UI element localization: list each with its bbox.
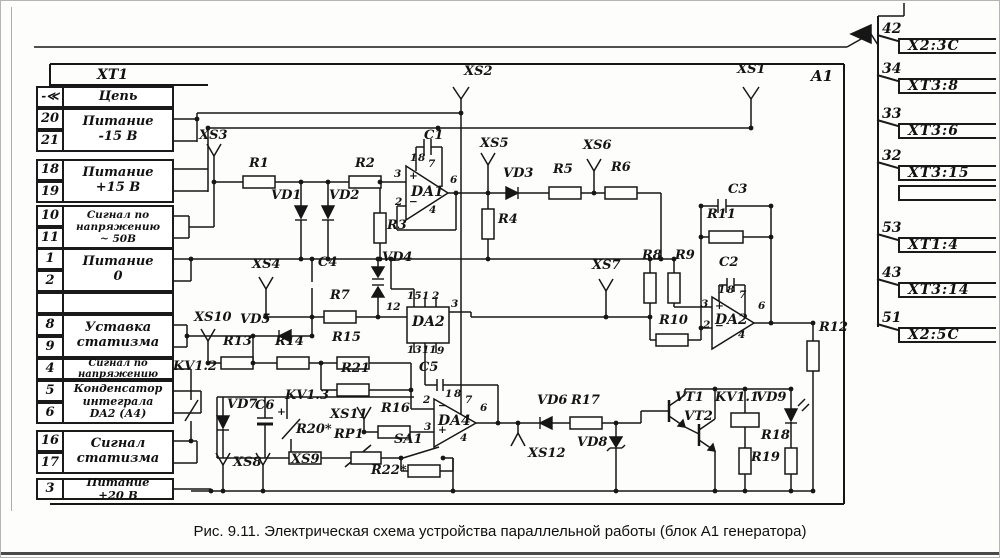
- circuit-label-4: 4: [460, 433, 467, 444]
- circuit-label-2: 2: [423, 395, 430, 406]
- resistor-R10: [656, 334, 688, 346]
- table-circuit-cell: Питание -15 В: [62, 108, 174, 152]
- resistor-R11: [709, 231, 743, 243]
- terminal-label-box: X2:3C: [898, 38, 996, 54]
- circuit-label-vd5: VD5: [240, 313, 270, 326]
- circuit-label-1: 1: [445, 389, 452, 400]
- circuit-label-6: 6: [450, 175, 457, 186]
- terminal-number: 42: [882, 21, 901, 37]
- circuit-label-rp1: RP1: [334, 428, 364, 441]
- terminal-label-box: XT3:15: [898, 165, 996, 181]
- terminal-number: 51: [882, 310, 901, 326]
- circuit-label-: +: [409, 171, 418, 182]
- schematic-page: XT1 A1 -≪Цепь2021Питание -15 В1819Питани…: [0, 0, 1000, 558]
- circuit-label-xs10: XS10: [194, 311, 232, 324]
- table-pin-cell: 17: [36, 452, 64, 474]
- circuit-label-3: 3: [701, 299, 708, 310]
- terminal-number: 53: [882, 220, 901, 236]
- circuit-label-vt1: VT1: [675, 391, 704, 404]
- table-pin-cell: 16: [36, 430, 64, 452]
- circuit-label-c4: C4: [318, 256, 337, 269]
- table-pin-cell: 8: [36, 314, 64, 336]
- circuit-label-r18: R18: [761, 429, 790, 442]
- terminal-number: 32: [882, 148, 901, 164]
- circuit-label-8: 8: [418, 153, 425, 164]
- resistor-R19: [739, 448, 751, 474]
- circuit-label-r8: R8: [642, 249, 662, 262]
- table-pin-cell: 10: [36, 205, 64, 227]
- circuit-label-: −: [409, 197, 418, 208]
- circuit-label-vd9: VD9: [756, 391, 786, 404]
- block-label: A1: [811, 67, 833, 85]
- circuit-label-r2: R2: [355, 157, 375, 170]
- circuit-label-2: 2: [395, 197, 402, 208]
- circuit-label-r17: R17: [571, 394, 600, 407]
- circuit-label-r1: R1: [249, 157, 269, 170]
- circuit-label-vd8: VD8: [577, 436, 607, 449]
- table-pin-cell: 20: [36, 108, 64, 130]
- resistor-R3: [374, 213, 386, 243]
- circuit-label-xs11: XS11: [330, 408, 368, 421]
- circuit-label-: +: [438, 425, 447, 436]
- circuit-label-xs2: XS2: [464, 65, 493, 78]
- circuit-label-2: 2: [432, 291, 439, 302]
- table-pin-cell: 18: [36, 159, 64, 181]
- circuit-label-kv11: KV1.1: [715, 391, 759, 404]
- circuit-label-vd3: VD3: [503, 167, 533, 180]
- resistor-R17: [570, 417, 602, 429]
- circuit-label-6: 6: [480, 403, 487, 414]
- circuit-label-r4: R4: [498, 213, 518, 226]
- resistor-R7: [324, 311, 356, 323]
- circuit-label-: −: [438, 401, 447, 412]
- circuit-label-: +: [715, 301, 724, 312]
- terminal-number: 33: [882, 106, 901, 122]
- circuit-label-1: 1: [422, 291, 429, 302]
- terminal-label-box: XT3:6: [898, 123, 996, 139]
- terminal-number: 34: [882, 61, 901, 77]
- circuit-label-7: 7: [739, 290, 746, 301]
- circuit-label-9: 9: [437, 346, 444, 357]
- circuit-label-11: 11: [422, 345, 437, 356]
- circuit-label-r9: R9: [675, 249, 695, 262]
- circuit-label-xs4: XS4: [252, 258, 281, 271]
- terminal-label-box: XT3:8: [898, 78, 996, 94]
- circuit-label-3: 3: [394, 169, 401, 180]
- circuit-label-r14: R14: [275, 335, 304, 348]
- table-pin-cell: 11: [36, 227, 64, 249]
- circuit-label-c6: C6: [255, 399, 274, 412]
- circuit-label-r19: R19: [751, 451, 780, 464]
- table-circuit-cell: Сигнал статизма: [62, 430, 174, 474]
- circuit-label-r11: R11: [707, 208, 736, 221]
- circuit-label-xs9: XS9: [291, 453, 320, 466]
- circuit-label-kv13: KV1.3: [285, 389, 329, 402]
- circuit-label-xs8: XS8: [233, 456, 262, 469]
- circuit-label-r7: R7: [330, 289, 350, 302]
- harness-arrow-icon: [851, 25, 871, 43]
- table-circuit-cell: Питание +15 В: [62, 159, 174, 203]
- table-circuit-cell: Уставка статизма: [62, 314, 174, 358]
- circuit-label-8: 8: [727, 285, 734, 296]
- circuit-label-r6: R6: [611, 161, 631, 174]
- table-col-header: Цепь: [62, 86, 174, 108]
- circuit-label-xs6: XS6: [583, 139, 612, 152]
- circuit-label-vd7: VD7: [227, 398, 257, 411]
- circuit-label-r5: R5: [553, 163, 573, 176]
- circuit-label-7: 7: [428, 159, 435, 170]
- circuit-label-c2: C2: [719, 256, 738, 269]
- circuit-label-r12: R12: [819, 321, 848, 334]
- circuit-label-c3: C3: [728, 183, 747, 196]
- circuit-label-2: 2: [703, 320, 710, 331]
- resistor-R14: [277, 357, 309, 369]
- relay-coil-KV1-1: [731, 413, 759, 427]
- table-pin-cell: 6: [36, 402, 64, 424]
- circuit-label-vd6: VD6: [537, 394, 567, 407]
- circuit-label-r16: R16: [381, 402, 410, 415]
- resistor-R22: [408, 465, 440, 477]
- table-pin-cell: 2: [36, 270, 64, 292]
- resistor-R1: [243, 176, 275, 188]
- resistor-R9: [668, 273, 680, 303]
- table-pin-cell: 1: [36, 248, 64, 270]
- terminal-label-box: [898, 185, 996, 201]
- circuit-label-12: 12: [386, 302, 401, 313]
- circuit-label-xs12: XS12: [528, 447, 566, 460]
- circuit-label-: +: [277, 407, 286, 418]
- table-title: XT1: [97, 67, 128, 83]
- resistor-R18: [785, 448, 797, 474]
- page-bottom-rule: [1, 552, 999, 555]
- resistor-R8: [644, 273, 656, 303]
- circuit-label-da2: DA2: [412, 315, 445, 329]
- circuit-label-4: 4: [738, 330, 745, 341]
- table-circuit-cell: Питание 0: [62, 248, 174, 292]
- circuit-label-kv12: KV1.2: [173, 360, 217, 373]
- circuit-label-r3: R3: [387, 219, 407, 232]
- table-pin-cell: [36, 292, 64, 314]
- circuit-label-r21: R21: [341, 362, 370, 375]
- circuit-label-c5: C5: [419, 361, 438, 374]
- table-circuit-cell: Питание +20 В: [62, 478, 174, 500]
- circuit-label-3: 3: [424, 422, 431, 433]
- table-pin-cell: 9: [36, 336, 64, 358]
- circuit-label-sa1: SA1: [394, 433, 423, 446]
- terminal-label-box: XT1:4: [898, 237, 996, 253]
- resistor-R12: [807, 341, 819, 371]
- table-pin-cell: 3: [36, 478, 64, 500]
- circuit-label-7: 7: [465, 395, 472, 406]
- circuit-label-xs5: XS5: [480, 137, 509, 150]
- table-pin-cell: 4: [36, 358, 64, 380]
- circuit-label-r13: R13: [223, 335, 252, 348]
- circuit-label-vd2: VD2: [329, 189, 359, 202]
- circuit-label-vd1: VD1: [271, 189, 301, 202]
- table-circuit-cell: Конденсатор интеграла DA2 (А4): [62, 380, 174, 424]
- circuit-label-1: 1: [718, 285, 725, 296]
- circuit-label-13: 13: [407, 345, 422, 356]
- circuit-label-3: 3: [451, 299, 458, 310]
- table-pin-cell: 5: [36, 380, 64, 402]
- resistor-R2: [349, 176, 381, 188]
- resistor-R5: [549, 187, 581, 199]
- circuit-label-r10: R10: [659, 314, 688, 327]
- resistor-R21: [337, 384, 369, 396]
- table-pin-cell: 19: [36, 181, 64, 203]
- terminal-label-box: X2:5C: [898, 327, 996, 343]
- figure-caption: Рис. 9.11. Электрическая схема устройств…: [1, 523, 999, 540]
- circuit-label-vd4: VD4: [382, 251, 412, 264]
- circuit-label-1: 1: [410, 153, 417, 164]
- circuit-label-xs3: XS3: [199, 129, 228, 142]
- circuit-label-6: 6: [758, 301, 765, 312]
- table-circuit-cell: Сигнал по напряжению: [62, 358, 174, 380]
- table-circuit-cell: Сигнал по напряжению ~ 50В: [62, 205, 174, 249]
- circuit-label-8: 8: [454, 389, 461, 400]
- circuit-label-4: 4: [429, 205, 436, 216]
- circuit-label-vt2: VT2: [684, 410, 713, 423]
- circuit-label-r22: R22*: [371, 464, 407, 477]
- resistor-R6: [605, 187, 637, 199]
- table-pin-cell: 21: [36, 130, 64, 152]
- circuit-label-xs7: XS7: [592, 259, 621, 272]
- circuit-label-r15: R15: [332, 331, 361, 344]
- circuit-label-: −: [715, 321, 724, 332]
- circuit-label-r20: R20*: [296, 423, 332, 436]
- table-circuit-cell: [62, 292, 174, 314]
- circuit-label-15: 15: [407, 291, 422, 302]
- table-arrow-icon: -≪: [36, 86, 64, 108]
- terminal-label-box: XT3:14: [898, 282, 996, 298]
- circuit-label-xs1: XS1: [737, 63, 766, 76]
- terminal-number: 43: [882, 265, 901, 281]
- resistor-R4: [482, 209, 494, 239]
- resistor-R13: [221, 357, 253, 369]
- circuit-label-c1: C1: [424, 129, 443, 142]
